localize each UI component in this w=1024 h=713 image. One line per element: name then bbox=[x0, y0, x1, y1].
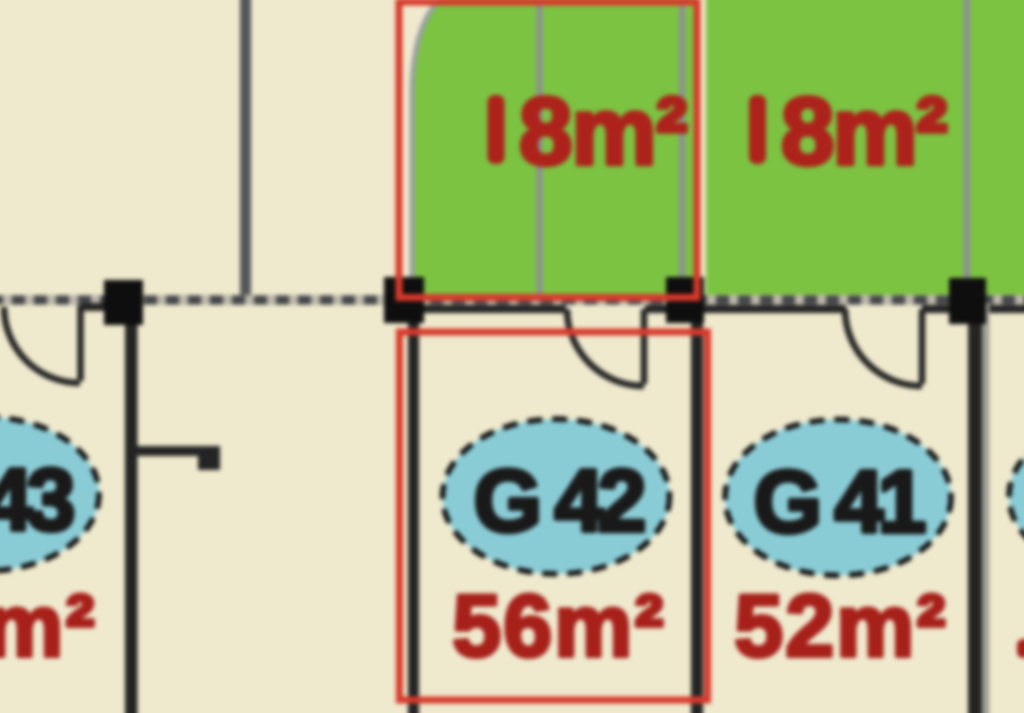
svg-text:G 42: G 42 bbox=[474, 451, 644, 550]
svg-text:56m²: 56m² bbox=[452, 576, 665, 675]
svg-text:G 43: G 43 bbox=[0, 450, 72, 549]
svg-text:8m²: 8m² bbox=[781, 78, 946, 185]
svg-text:G 41: G 41 bbox=[754, 452, 925, 551]
svg-text:54m²: 54m² bbox=[0, 576, 97, 675]
svg-text:8m²: 8m² bbox=[519, 78, 687, 185]
svg-text:52m²: 52m² bbox=[734, 576, 947, 675]
